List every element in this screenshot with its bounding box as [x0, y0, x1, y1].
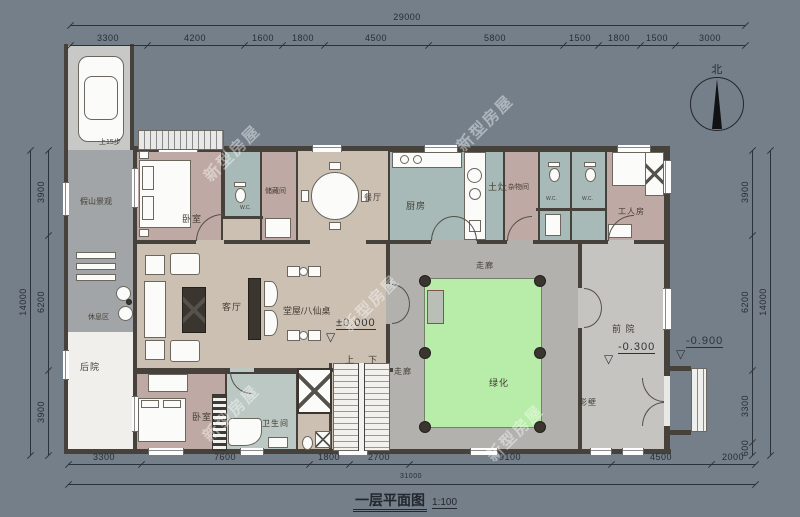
dim-tick	[637, 41, 644, 48]
label-stair-up: 上	[345, 353, 355, 366]
label-wc-3: W.C.	[582, 196, 593, 202]
label-storage: 储藏间	[265, 186, 286, 196]
dim-left-total: 14000	[18, 288, 28, 316]
dim-tick	[65, 480, 72, 487]
north-label: 北	[711, 61, 723, 77]
rockery-area	[68, 150, 133, 332]
label-stove: 土灶	[488, 180, 508, 193]
pillow	[163, 400, 181, 408]
dim-bottom-seg: 3300	[93, 452, 115, 462]
dim-tick	[742, 41, 749, 48]
dim-line	[70, 25, 745, 26]
dim-top-seg: 1800	[608, 33, 630, 43]
column	[534, 347, 546, 359]
bench-step	[76, 252, 116, 259]
dim-top-seg: 1500	[569, 33, 591, 43]
tea-table	[182, 287, 206, 333]
pillow	[142, 166, 154, 190]
screen-partition	[248, 278, 261, 340]
chair	[308, 266, 321, 277]
elevation-front-yard: -0.300	[618, 341, 655, 354]
wall	[64, 44, 68, 454]
shower	[315, 431, 331, 448]
armchair	[170, 253, 200, 275]
dim-tick	[306, 460, 313, 467]
label-bedroom-1: 卧室	[182, 212, 202, 225]
wall	[578, 242, 582, 451]
wall	[669, 366, 691, 371]
dim-tick	[752, 480, 759, 487]
dim-top-seg: 3000	[699, 33, 721, 43]
north-arrow-needle	[712, 79, 722, 129]
washer	[545, 214, 561, 236]
pillow	[141, 400, 159, 408]
dim-tick	[241, 41, 248, 48]
title-text: 一层平面图	[353, 492, 427, 512]
pillow	[142, 196, 154, 220]
dim-top-total: 29000	[393, 12, 421, 22]
dim-tick	[742, 21, 749, 28]
dim-left-seg: 3900	[36, 401, 46, 423]
stove-burner	[469, 188, 481, 200]
toilet-bowl	[235, 188, 246, 203]
window-symbol	[663, 288, 671, 330]
curved-seat	[264, 281, 278, 307]
stool	[126, 299, 132, 305]
dim-top-seg: 1600	[252, 33, 274, 43]
backyard-area	[68, 332, 133, 451]
floor-plan: 假山景观 休息区 后院 卧室 W.C. 储藏间 餐厅 厨房 土灶 杂物间 W.C…	[0, 0, 800, 517]
level-symbol: ▽	[326, 330, 335, 344]
window-symbol	[63, 182, 69, 216]
label-wc-2: W.C.	[546, 196, 557, 202]
label-hall: 堂屋/八仙桌	[283, 304, 331, 317]
wall	[536, 208, 607, 211]
nightstand	[139, 229, 149, 237]
car-cabin	[84, 76, 118, 120]
label-kitchen: 厨房	[406, 199, 426, 212]
wall	[221, 216, 263, 219]
drawing-title: 一层平面图1:100	[320, 490, 490, 510]
table	[299, 331, 308, 340]
sofa	[144, 281, 166, 338]
dim-right-seg: 3900	[740, 181, 750, 203]
label-front-yard: 前 院	[612, 322, 636, 335]
label-utility: 杂物间	[508, 182, 529, 192]
dim-tick	[346, 460, 353, 467]
level-symbol: ▽	[604, 352, 613, 366]
dim-top-seg: 1500	[646, 33, 668, 43]
dim-line	[70, 45, 745, 46]
label-worker-room: 工人房	[618, 206, 645, 217]
dim-tick	[767, 146, 774, 153]
dim-tick	[749, 366, 756, 373]
dim-top-seg: 1800	[292, 33, 314, 43]
dim-line	[752, 150, 753, 455]
label-dining: 餐厅	[364, 192, 382, 203]
side-table	[145, 340, 165, 360]
dim-tick	[65, 460, 72, 467]
chair	[308, 330, 321, 341]
dim-tick	[67, 21, 74, 28]
window-symbol	[148, 448, 184, 455]
dim-line	[68, 484, 755, 485]
level-symbol: ▽	[676, 347, 685, 361]
toilet	[584, 162, 596, 167]
bench-step	[76, 263, 116, 270]
dim-tick	[45, 451, 52, 458]
dim-tick	[45, 231, 52, 238]
wall	[669, 430, 691, 435]
gate-opening	[664, 376, 670, 426]
stove-burner	[467, 168, 482, 183]
dim-tick	[749, 451, 756, 458]
dim-line	[48, 150, 49, 455]
toilet-bowl	[585, 168, 596, 182]
column	[534, 275, 546, 287]
dim-tick	[708, 460, 715, 467]
dim-bottom-seg: 1800	[318, 452, 340, 462]
dim-line	[30, 150, 31, 455]
window-symbol	[663, 160, 671, 194]
stool	[118, 306, 133, 321]
gate-steps	[691, 368, 707, 432]
dim-left-seg: 6200	[36, 291, 46, 313]
nightstand	[139, 151, 149, 159]
armchair	[170, 340, 200, 362]
dim-bottom-seg: 7600	[214, 452, 236, 462]
garden-bench	[427, 290, 444, 324]
entry-stairs	[138, 130, 224, 150]
window-symbol	[622, 448, 644, 455]
dim-top-seg: 4500	[365, 33, 387, 43]
dim-tick	[672, 41, 679, 48]
label-bathroom: 卫生间	[262, 418, 289, 429]
side-table	[145, 255, 165, 275]
dim-tick	[560, 41, 567, 48]
dim-bottom-seg: 2700	[368, 452, 390, 462]
window-symbol	[240, 448, 264, 455]
table	[299, 267, 308, 276]
dim-tick	[595, 41, 602, 48]
column	[419, 275, 431, 287]
dim-tick	[45, 146, 52, 153]
dim-top-seg: 5800	[484, 33, 506, 43]
bed	[148, 374, 188, 392]
dim-left-seg: 3900	[36, 181, 46, 203]
door-opening	[578, 288, 582, 328]
dim-right-seg: 600	[740, 440, 750, 457]
dim-right-seg: 6200	[740, 291, 750, 313]
dim-right-seg: 3300	[740, 395, 750, 417]
bench-step	[76, 274, 116, 281]
dim-tick	[767, 451, 774, 458]
wall	[130, 44, 134, 150]
dim-tick	[425, 41, 432, 48]
chair	[329, 162, 341, 170]
toilet	[548, 162, 560, 167]
label-stair-down: 下	[368, 353, 378, 366]
toilet-bowl	[302, 436, 313, 450]
dim-tick	[749, 231, 756, 238]
label-screen-wall: 影壁	[579, 397, 597, 408]
window-symbol	[617, 145, 651, 152]
sink	[413, 155, 422, 164]
dim-tick	[752, 460, 759, 467]
dining-table	[311, 172, 359, 220]
column	[419, 421, 431, 433]
dim-tick	[279, 41, 286, 48]
dim-top-seg: 3300	[97, 33, 119, 43]
window-symbol	[63, 350, 69, 380]
vanity	[268, 437, 288, 448]
label-greenery: 绿化	[489, 376, 509, 389]
elevator	[297, 368, 332, 414]
window-symbol	[424, 145, 458, 152]
chair	[301, 190, 309, 202]
label-rest-area: 休息区	[88, 312, 109, 322]
sink	[400, 155, 409, 164]
window-symbol	[132, 168, 138, 208]
shelf	[265, 218, 291, 238]
label-corridor-left: 走廊	[394, 366, 412, 377]
dim-tick	[27, 451, 34, 458]
dim-tick	[749, 438, 756, 445]
label-rockery: 假山景观	[80, 196, 112, 207]
dim-line	[68, 464, 755, 465]
title-scale: 1:100	[432, 497, 457, 509]
dim-tick	[144, 41, 151, 48]
chair	[329, 222, 341, 230]
dim-tick	[321, 41, 328, 48]
label-living-room: 客厅	[222, 300, 242, 313]
dim-tick	[45, 366, 52, 373]
window-symbol	[312, 145, 342, 152]
dim-right-total: 14000	[758, 288, 768, 316]
dim-line	[770, 150, 771, 455]
toilet	[234, 182, 246, 187]
elevation-outside: -0.900	[686, 335, 723, 348]
label-backyard: 后院	[80, 360, 100, 373]
label-entry-stairs: 上15步	[99, 137, 121, 147]
label-wc-1: W.C.	[240, 205, 251, 211]
window-symbol	[590, 448, 612, 455]
label-corridor-top: 走廊	[476, 260, 494, 271]
dim-bottom-seg: 4500	[650, 452, 672, 462]
curved-seat	[264, 310, 278, 336]
stair-stringer	[358, 363, 365, 451]
dim-tick	[749, 146, 756, 153]
toilet-bowl	[549, 168, 560, 182]
dim-tick	[138, 460, 145, 467]
dim-bottom-total: 31000	[400, 473, 422, 480]
wardrobe	[645, 152, 664, 196]
column	[419, 347, 431, 359]
door-opening	[310, 240, 366, 244]
dim-tick	[608, 460, 615, 467]
dim-top-seg: 4200	[184, 33, 206, 43]
dim-tick	[406, 460, 413, 467]
dim-tick	[27, 146, 34, 153]
